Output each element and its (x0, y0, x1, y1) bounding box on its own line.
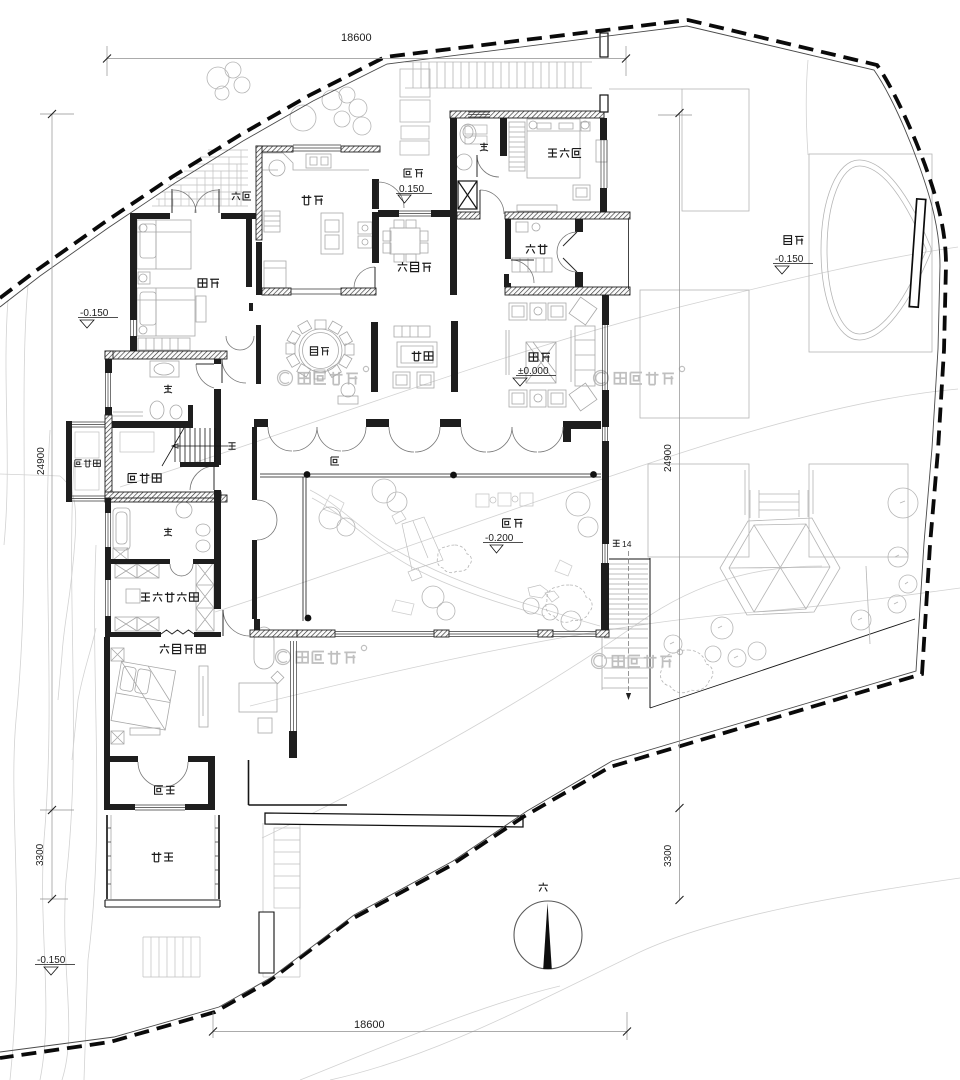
svg-text:3300: 3300 (663, 844, 674, 867)
svg-text:18600: 18600 (341, 32, 372, 44)
svg-text:14: 14 (622, 539, 632, 549)
svg-text:24900: 24900 (663, 444, 674, 472)
svg-text:18600: 18600 (354, 1019, 385, 1031)
svg-text:3300: 3300 (35, 843, 46, 866)
svg-text:24900: 24900 (36, 447, 47, 475)
